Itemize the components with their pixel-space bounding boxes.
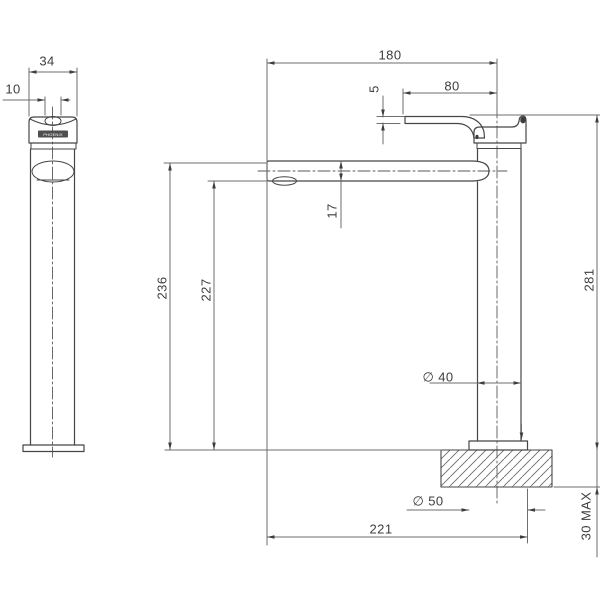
dim-overall-reach-label: 221 [370, 523, 393, 536]
side-lever-endview [45, 117, 61, 126]
front-column [478, 149, 522, 442]
dim-base-diameter-label: ∅ 50 [413, 495, 444, 508]
front-cartridge-ring [477, 143, 521, 149]
dim-side-body-width-label: 34 [39, 55, 54, 68]
dim-height-to-aerator-label: 227 [200, 279, 213, 302]
dim-overall-height-label: 281 [583, 269, 596, 292]
drawing-linework [0, 0, 600, 600]
front-view [165, 106, 552, 505]
dim-lever-thickness-label: 5 [368, 85, 381, 93]
front-base-flange [469, 441, 528, 450]
side-cartridge-ring [31, 143, 76, 149]
bench-section [441, 450, 552, 487]
dim-height-to-spout-top-label: 236 [156, 277, 169, 300]
dim-max-bench-thickness-label: 30 MAX [580, 492, 593, 541]
side-base-flange [23, 445, 84, 452]
dim-spout-reach-label: 180 [379, 49, 402, 62]
side-spout-endview [32, 161, 74, 182]
front-body-cap [474, 116, 526, 143]
dim-handle-length-label: 80 [444, 80, 459, 93]
dim-spout-height-label: 17 [326, 203, 339, 218]
side-view [23, 107, 84, 457]
dim-side-lever-width-label: 10 [5, 83, 20, 96]
brand-badge-text: PHOENIX [43, 133, 62, 137]
handle-lever [405, 117, 485, 139]
dim-body-diameter-label: ∅ 40 [423, 371, 454, 384]
technical-drawing-page: 34 10 180 80 5 17 236 227 281 ∅ 40 ∅ 50 … [0, 0, 600, 600]
side-body-cap [29, 117, 77, 143]
